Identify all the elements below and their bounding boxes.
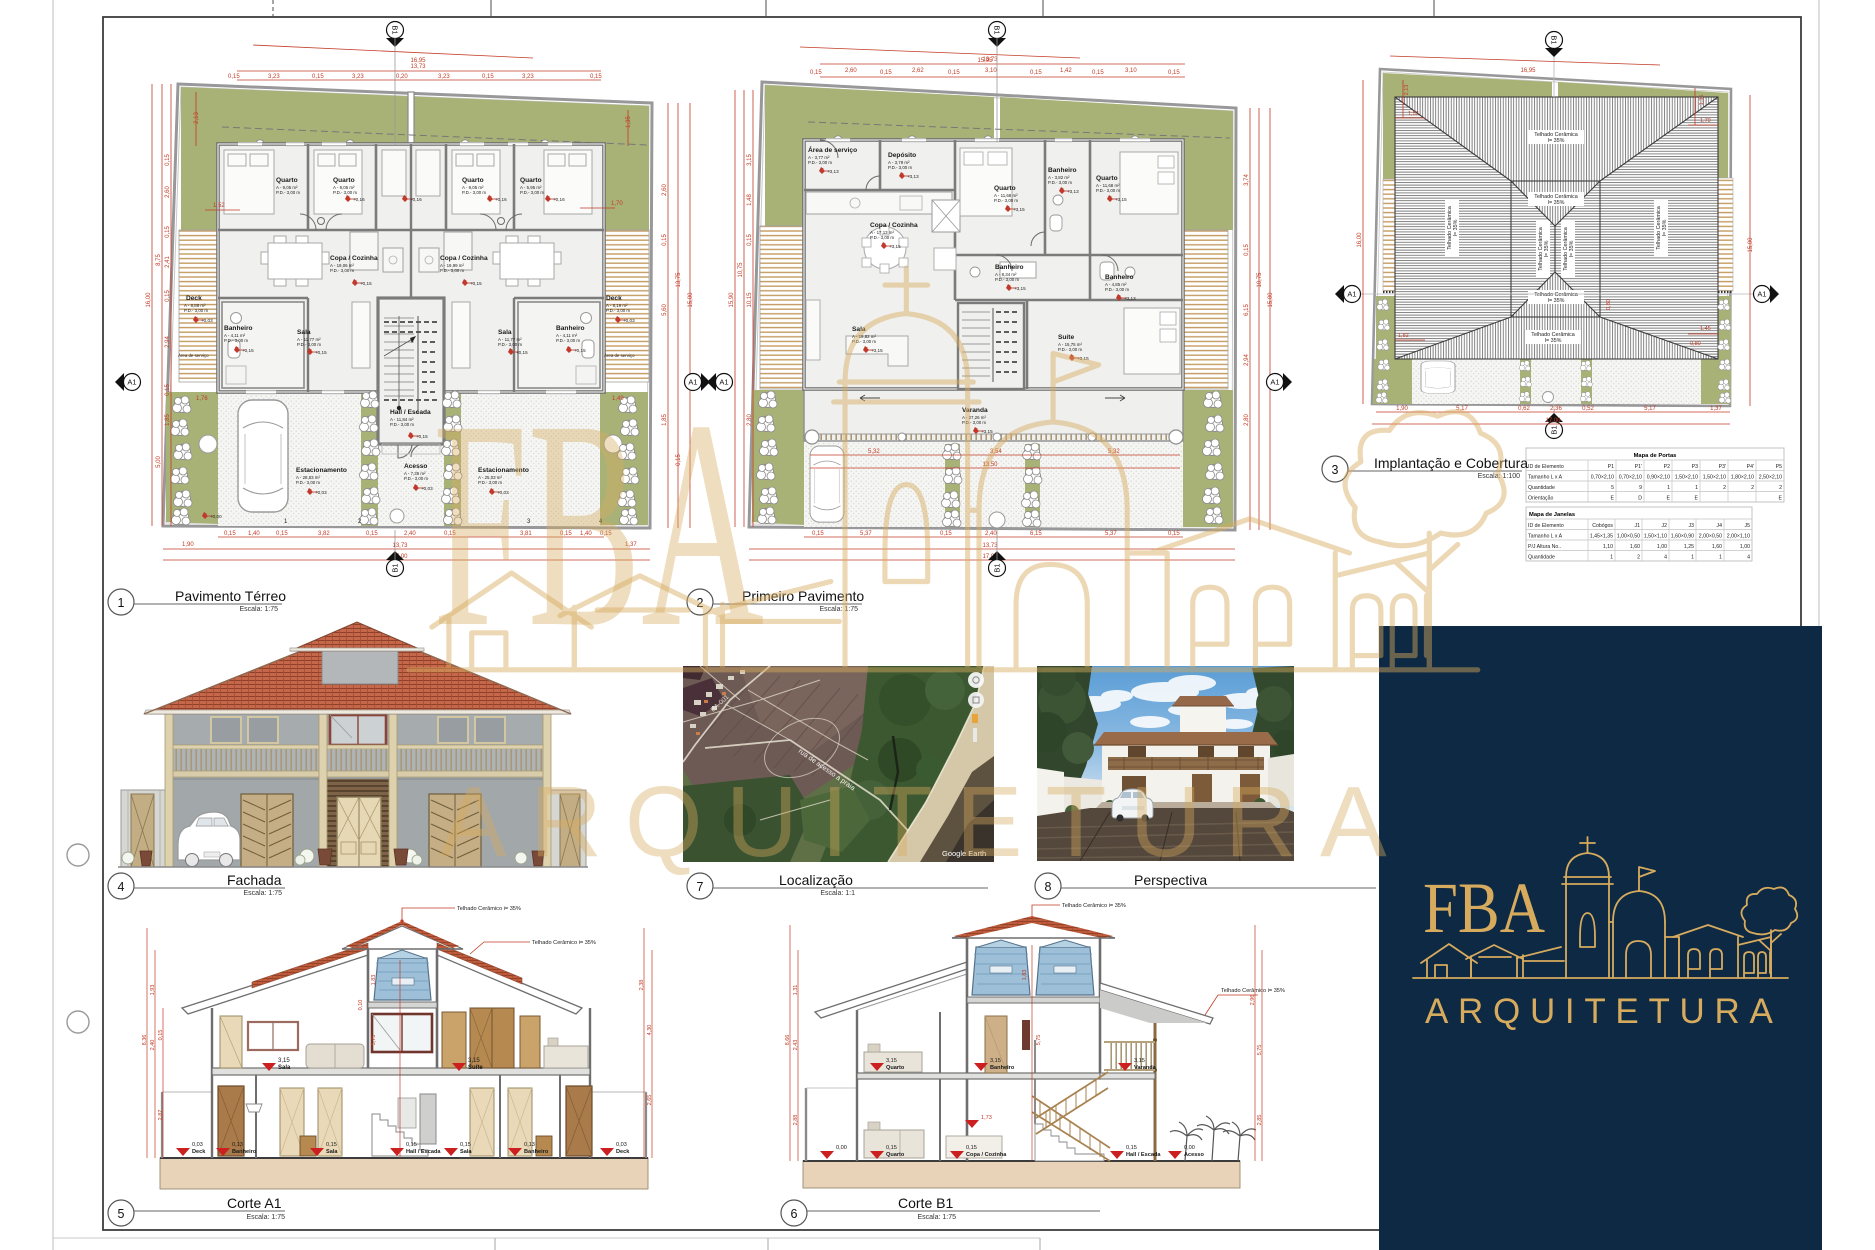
svg-text:0,15: 0,15 <box>880 70 892 76</box>
svg-text:Mapa de Janelas: Mapa de Janelas <box>1529 512 1575 518</box>
svg-text:I= 35%: I= 35% <box>1662 219 1668 236</box>
svg-text:0,15: 0,15 <box>1126 1145 1137 1151</box>
svg-text:10,75: 10,75 <box>738 262 744 278</box>
svg-text:1,45×1,35: 1,45×1,35 <box>1590 534 1613 540</box>
svg-text:0,15: 0,15 <box>165 384 171 396</box>
svg-text:J4: J4 <box>1717 523 1723 529</box>
svg-text:0,15: 0,15 <box>812 531 824 537</box>
svg-text:2,65: 2,65 <box>647 1095 653 1106</box>
svg-text:3,15: 3,15 <box>990 1058 1001 1064</box>
svg-text:I= 35%: I= 35% <box>1569 240 1575 257</box>
svg-text:Acesso: Acesso <box>1184 1152 1204 1158</box>
svg-text:Corte A1: Corte A1 <box>227 1195 282 1211</box>
svg-text:Escala: 1:75: Escala: 1:75 <box>819 606 858 613</box>
svg-text:10,15: 10,15 <box>747 292 753 308</box>
svg-text:0,20: 0,20 <box>396 74 408 80</box>
svg-text:+3,13: +3,13 <box>1124 296 1136 301</box>
svg-text:1,83: 1,83 <box>371 975 377 986</box>
svg-text:J5: J5 <box>1745 523 1751 529</box>
svg-text:Hall / Escada: Hall / Escada <box>390 409 431 416</box>
svg-text:Telhado Cerâmico i= 35%: Telhado Cerâmico i= 35% <box>457 906 521 912</box>
svg-text:Corte B1: Corte B1 <box>898 1195 953 1211</box>
svg-text:13,73: 13,73 <box>410 64 426 70</box>
svg-text:0,15: 0,15 <box>366 531 378 537</box>
svg-text:3,15: 3,15 <box>468 1058 480 1064</box>
svg-text:Quantidade: Quantidade <box>1528 555 1555 561</box>
svg-text:Escala: 1:1: Escala: 1:1 <box>820 890 855 897</box>
svg-text:0,70×2,10: 0,70×2,10 <box>1619 475 1642 481</box>
svg-text:Banheiro: Banheiro <box>524 1149 549 1155</box>
svg-text:0,03: 0,03 <box>616 1142 627 1148</box>
svg-text:ID de Elemento: ID de Elemento <box>1528 523 1564 529</box>
svg-text:Escala: 1:75: Escala: 1:75 <box>243 890 282 897</box>
svg-text:1,48: 1,48 <box>747 194 753 206</box>
svg-text:+3,15: +3,15 <box>1013 207 1025 212</box>
svg-text:3,15: 3,15 <box>1134 1058 1145 1064</box>
svg-text:P.D.- 3,00 m: P.D.- 3,00 m <box>390 422 414 427</box>
svg-text:2,62: 2,62 <box>912 68 924 74</box>
svg-text:+0,16: +0,16 <box>495 197 507 202</box>
svg-text:1,60×0,90: 1,60×0,90 <box>1671 534 1694 540</box>
svg-text:3,23: 3,23 <box>438 74 450 80</box>
svg-text:Banheiro: Banheiro <box>556 325 585 332</box>
svg-text:2,38: 2,38 <box>639 980 645 991</box>
svg-text:Estacionamento: Estacionamento <box>296 467 347 474</box>
svg-text:Copa / Cozinha: Copa / Cozinha <box>870 222 918 229</box>
svg-text:E: E <box>1779 496 1783 502</box>
svg-text:6,15: 6,15 <box>1244 304 1250 316</box>
svg-text:0,15: 0,15 <box>886 1145 897 1151</box>
svg-text:1,50×2,10: 1,50×2,10 <box>1703 475 1726 481</box>
svg-text:Banheiro: Banheiro <box>1105 274 1134 281</box>
svg-text:0,15: 0,15 <box>1168 531 1180 537</box>
svg-text:0,15: 0,15 <box>1030 70 1042 76</box>
svg-text:+0,15: +0,15 <box>516 350 528 355</box>
svg-text:Hall / Escada: Hall / Escada <box>406 1149 441 1155</box>
svg-text:Escala: 1:75: Escala: 1:75 <box>917 1214 956 1221</box>
svg-text:2: 2 <box>1637 555 1640 561</box>
svg-text:15,00: 15,00 <box>1748 237 1754 253</box>
svg-text:1,40: 1,40 <box>248 531 260 537</box>
svg-text:Deck: Deck <box>192 1149 206 1155</box>
svg-text:P.D.- 3,00 m: P.D.- 3,00 m <box>995 277 1019 282</box>
svg-text:1,80×2,10: 1,80×2,10 <box>1731 475 1754 481</box>
svg-text:3,82: 3,82 <box>318 531 330 537</box>
svg-text:0,90×2,10: 0,90×2,10 <box>1647 475 1670 481</box>
svg-text:Telhado Cerâmico i= 35%: Telhado Cerâmico i= 35% <box>1221 988 1285 994</box>
svg-text:17,00: 17,00 <box>1545 418 1561 424</box>
svg-text:P.D.- 3,00 m: P.D.- 3,00 m <box>333 190 357 195</box>
svg-text:P1: P1 <box>1608 464 1614 470</box>
svg-text:2,96: 2,96 <box>1250 995 1256 1006</box>
svg-text:Sala: Sala <box>278 1065 291 1071</box>
svg-text:3,15: 3,15 <box>886 1058 897 1064</box>
svg-text:P.D.- 3,00 m: P.D.- 3,00 m <box>1048 180 1072 185</box>
svg-text:16,95: 16,95 <box>1520 68 1536 74</box>
svg-text:0,15: 0,15 <box>276 531 288 537</box>
svg-text:1,73: 1,73 <box>981 1115 992 1121</box>
svg-text:1,90: 1,90 <box>182 542 194 548</box>
svg-text:Sala: Sala <box>326 1149 338 1155</box>
svg-text:I= 35%: I= 35% <box>1548 200 1565 206</box>
svg-text:2,94: 2,94 <box>165 336 171 348</box>
svg-text:P1': P1' <box>1635 464 1642 470</box>
svg-text:1,35: 1,35 <box>626 116 632 128</box>
svg-text:15,90: 15,90 <box>729 292 735 308</box>
svg-text:0,00: 0,00 <box>836 1145 847 1151</box>
svg-text:1: 1 <box>118 596 125 610</box>
svg-text:Depósito: Depósito <box>888 152 916 159</box>
svg-text:3,10: 3,10 <box>1125 68 1137 74</box>
svg-text:I= 35%: I= 35% <box>1548 138 1565 144</box>
svg-text:5: 5 <box>1611 485 1614 491</box>
svg-text:1,52: 1,52 <box>1408 111 1419 117</box>
svg-text:P.D.- 3,00 m: P.D.- 3,00 m <box>498 342 522 347</box>
svg-text:1,50×1,10: 1,50×1,10 <box>1644 534 1667 540</box>
svg-text:0,15: 0,15 <box>326 1142 337 1148</box>
svg-text:Sala: Sala <box>498 329 512 336</box>
svg-text:2,40: 2,40 <box>985 531 997 537</box>
svg-text:3,23: 3,23 <box>352 74 364 80</box>
svg-text:1,83: 1,83 <box>1022 970 1028 981</box>
svg-text:E: E <box>1611 496 1615 502</box>
svg-text:+3,13: +3,13 <box>907 174 919 179</box>
svg-text:1,60: 1,60 <box>1712 544 1722 550</box>
svg-text:0,15: 0,15 <box>948 70 960 76</box>
svg-text:Copa / Cozinha: Copa / Cozinha <box>440 255 488 262</box>
svg-text:+0,03: +0,03 <box>421 486 433 491</box>
svg-text:Área de serviço: Área de serviço <box>178 353 209 358</box>
svg-text:Mapa de Portas: Mapa de Portas <box>1634 453 1677 459</box>
svg-text:1,70: 1,70 <box>611 201 623 207</box>
svg-text:Quarto: Quarto <box>994 185 1016 192</box>
svg-text:4: 4 <box>1747 555 1750 561</box>
svg-text:2: 2 <box>1779 485 1782 491</box>
svg-text:2,60: 2,60 <box>845 68 857 74</box>
svg-text:1,25: 1,25 <box>1684 544 1694 550</box>
svg-text:13,73: 13,73 <box>982 57 998 63</box>
svg-text:P.D.- 3,00 m: P.D.- 3,00 m <box>606 308 630 313</box>
svg-text:0,15: 0,15 <box>406 1142 417 1148</box>
svg-text:5,75: 5,75 <box>1036 1035 1042 1046</box>
svg-text:Quarto: Quarto <box>1096 175 1118 182</box>
svg-text:+0,03: +0,03 <box>201 318 213 323</box>
svg-text:1: 1 <box>1695 485 1698 491</box>
svg-text:I= 35%: I= 35% <box>1544 240 1550 257</box>
svg-text:1,45: 1,45 <box>1700 326 1711 332</box>
svg-text:0,15: 0,15 <box>966 1145 977 1151</box>
svg-text:P.D.- 3,00 m: P.D.- 3,00 m <box>462 190 486 195</box>
svg-text:0,15: 0,15 <box>312 74 324 80</box>
svg-text:2: 2 <box>1723 485 1726 491</box>
svg-text:2,36: 2,36 <box>1550 406 1562 412</box>
svg-text:P.D.- 3,00 m: P.D.- 3,00 m <box>276 190 300 195</box>
svg-text:+3,15: +3,15 <box>1014 286 1026 291</box>
svg-text:Fachada: Fachada <box>227 872 282 888</box>
svg-text:0,15: 0,15 <box>165 226 171 238</box>
svg-text:1,60: 1,60 <box>1630 544 1640 550</box>
svg-text:1: 1 <box>1691 555 1694 561</box>
svg-text:P.D.- 3,00 m: P.D.- 3,00 m <box>1058 347 1082 352</box>
svg-text:5,60: 5,60 <box>662 304 668 316</box>
svg-text:1,52: 1,52 <box>213 203 225 209</box>
svg-text:10,75: 10,75 <box>1257 272 1263 288</box>
svg-text:+0,15: +0,15 <box>242 348 254 353</box>
svg-text:0,80: 0,80 <box>1690 341 1701 347</box>
svg-text:Tamanho L x A: Tamanho L x A <box>1528 534 1563 540</box>
svg-text:Varanda: Varanda <box>1134 1065 1157 1071</box>
svg-text:Sala: Sala <box>460 1149 472 1155</box>
svg-text:0,70×2,10: 0,70×2,10 <box>1591 475 1614 481</box>
svg-text:2,60: 2,60 <box>165 186 171 198</box>
svg-text:P.D.- 3,00 m: P.D.- 3,00 m <box>556 338 580 343</box>
svg-text:3,23: 3,23 <box>268 74 280 80</box>
svg-text:8,75: 8,75 <box>156 254 162 266</box>
svg-text:0,62: 0,62 <box>1518 406 1530 412</box>
svg-text:+3,15: +3,15 <box>889 244 901 249</box>
svg-text:1,85: 1,85 <box>165 414 171 426</box>
svg-text:4: 4 <box>118 880 125 894</box>
svg-text:2,87: 2,87 <box>158 1110 164 1121</box>
svg-text:0,15: 0,15 <box>158 1030 164 1041</box>
svg-text:P.D.- 3,00 m: P.D.- 3,00 m <box>440 268 464 273</box>
svg-text:Banheiro: Banheiro <box>990 1065 1015 1071</box>
svg-text:9: 9 <box>1639 485 1642 491</box>
svg-text:P2: P2 <box>1664 464 1670 470</box>
svg-text:P.D.- 3,00 m: P.D.- 3,00 m <box>1105 287 1129 292</box>
svg-text:+3,15: +3,15 <box>1115 197 1127 202</box>
svg-text:Copa / Cozinha: Copa / Cozinha <box>330 255 378 262</box>
svg-text:1,82: 1,82 <box>1398 333 1409 339</box>
svg-text:I= 35%: I= 35% <box>1545 338 1562 344</box>
svg-text:16,00: 16,00 <box>1357 232 1363 248</box>
svg-text:2,94: 2,94 <box>1244 354 1250 366</box>
svg-text:0,13: 0,13 <box>232 1142 243 1148</box>
svg-text:6,15: 6,15 <box>1030 531 1042 537</box>
svg-text:P.D.- 3,00 m: P.D.- 3,00 m <box>296 480 320 485</box>
svg-text:Quarto: Quarto <box>886 1152 905 1158</box>
svg-text:0,15: 0,15 <box>460 1142 471 1148</box>
svg-text:ARQUITETURA: ARQUITETURA <box>440 766 1410 878</box>
svg-text:Deck: Deck <box>186 295 202 302</box>
svg-text:+0,03: +0,03 <box>623 318 635 323</box>
svg-text:0,15: 0,15 <box>165 154 171 166</box>
svg-text:P.D.- 3,00 m: P.D.- 3,00 m <box>1096 188 1120 193</box>
svg-text:0,52: 0,52 <box>1582 406 1594 412</box>
svg-text:0,80: 0,80 <box>1606 299 1612 310</box>
svg-text:+0,16: +0,16 <box>353 197 365 202</box>
svg-text:P.D.- 3,00 m: P.D.- 3,00 m <box>888 165 912 170</box>
svg-text:Quarto: Quarto <box>520 177 542 184</box>
svg-text:3,74: 3,74 <box>1244 174 1250 186</box>
svg-text:0,15: 0,15 <box>165 290 171 302</box>
svg-text:8,36: 8,36 <box>142 1035 148 1046</box>
svg-text:J3: J3 <box>1689 523 1695 529</box>
svg-text:1,35: 1,35 <box>1699 95 1705 106</box>
svg-text:J2: J2 <box>1662 523 1668 529</box>
svg-text:5,37: 5,37 <box>1105 531 1117 537</box>
svg-text:2,40: 2,40 <box>150 1040 156 1051</box>
svg-text:Área de serviço: Área de serviço <box>604 353 635 358</box>
svg-text:E: E <box>1667 496 1671 502</box>
svg-text:1,76: 1,76 <box>196 396 208 402</box>
svg-text:FBA: FBA <box>433 359 764 689</box>
svg-text:+0,03: +0,03 <box>315 490 327 495</box>
svg-text:Quantidade: Quantidade <box>1528 485 1555 491</box>
svg-text:P.D.- 3,00 m: P.D.- 3,00 m <box>297 342 321 347</box>
svg-text:P.D.- 3,00 m: P.D.- 3,00 m <box>330 268 354 273</box>
svg-text:0,15: 0,15 <box>1092 70 1104 76</box>
svg-text:2,88: 2,88 <box>793 1115 799 1126</box>
svg-text:0,15: 0,15 <box>747 234 753 246</box>
svg-text:0,03: 0,03 <box>192 1142 203 1148</box>
svg-text:Acesso: Acesso <box>404 463 427 470</box>
svg-text:2,85: 2,85 <box>1257 1115 1263 1126</box>
svg-text:0,15: 0,15 <box>224 531 236 537</box>
svg-text:4,30: 4,30 <box>647 1025 653 1036</box>
svg-text:3,15: 3,15 <box>747 154 753 166</box>
svg-text:P3': P3' <box>1719 464 1726 470</box>
svg-text:1,37: 1,37 <box>1710 406 1722 412</box>
svg-text:Telhado Cerâmico i= 35%: Telhado Cerâmico i= 35% <box>532 940 596 946</box>
svg-text:Suíte: Suíte <box>468 1065 483 1071</box>
svg-text:2,60: 2,60 <box>662 184 668 196</box>
svg-text:Quarto: Quarto <box>276 177 298 184</box>
svg-text:P.D.- 3,00 m: P.D.- 3,00 m <box>808 160 832 165</box>
svg-text:Tamanho L x A: Tamanho L x A <box>1528 475 1563 481</box>
svg-text:Banheiro: Banheiro <box>995 264 1024 271</box>
svg-text:Quarto: Quarto <box>886 1065 905 1071</box>
svg-text:Banheiro: Banheiro <box>232 1149 257 1155</box>
svg-text:1,93: 1,93 <box>150 985 156 996</box>
svg-text:6: 6 <box>791 1207 798 1221</box>
svg-text:3,15: 3,15 <box>278 1058 290 1064</box>
svg-text:0,15: 0,15 <box>590 74 602 80</box>
svg-text:1: 1 <box>1719 555 1722 561</box>
svg-text:Suíte: Suíte <box>1058 334 1074 341</box>
svg-text:15,00: 15,00 <box>1268 292 1274 308</box>
svg-text:5,75: 5,75 <box>1257 1045 1263 1056</box>
svg-text:P.D.- 3,00 m: P.D.- 3,00 m <box>870 235 894 240</box>
svg-text:1,00: 1,00 <box>1657 544 1667 550</box>
svg-text:P3: P3 <box>1692 464 1698 470</box>
svg-text:Banheiro: Banheiro <box>1048 167 1077 174</box>
svg-text:2,13: 2,13 <box>194 112 200 124</box>
svg-text:+0,15: +0,15 <box>360 281 372 286</box>
svg-text:0,15: 0,15 <box>1244 244 1250 256</box>
svg-text:P.D.- 3,00 m: P.D.- 3,00 m <box>224 338 248 343</box>
svg-text:0,00: 0,00 <box>1184 1145 1195 1151</box>
svg-text:Copa / Cozinha: Copa / Cozinha <box>966 1152 1007 1158</box>
svg-text:Quarto: Quarto <box>462 177 484 184</box>
svg-text:Deck: Deck <box>606 295 622 302</box>
svg-text:Área de serviço: Área de serviço <box>808 145 857 154</box>
svg-text:2,00×0,50: 2,00×0,50 <box>1699 534 1722 540</box>
svg-text:5: 5 <box>118 1207 125 1221</box>
svg-text:2: 2 <box>1751 485 1754 491</box>
svg-text:0,15: 0,15 <box>940 531 952 537</box>
svg-text:2,00×1,10: 2,00×1,10 <box>1727 534 1750 540</box>
svg-text:3,10: 3,10 <box>985 68 997 74</box>
svg-text:Implantação e Cobertura: Implantação e Cobertura <box>1374 455 1528 471</box>
svg-text:Telhado Cerâmico i= 35%: Telhado Cerâmico i= 35% <box>1062 903 1126 909</box>
svg-text:Quarto: Quarto <box>333 177 355 184</box>
svg-text:5,00: 5,00 <box>156 456 162 468</box>
svg-text:8: 8 <box>1045 880 1052 894</box>
svg-text:I= 35%: I= 35% <box>1548 298 1565 304</box>
svg-text:+0,00: +0,00 <box>210 514 222 519</box>
svg-text:1,42: 1,42 <box>1060 68 1072 74</box>
svg-text:1,70: 1,70 <box>1700 118 1711 124</box>
svg-text:0,15: 0,15 <box>1168 70 1180 76</box>
svg-text:2,41: 2,41 <box>165 256 171 268</box>
svg-text:16,00: 16,00 <box>146 292 152 308</box>
svg-text:J1: J1 <box>1635 523 1641 529</box>
svg-text:1,10: 1,10 <box>1603 544 1613 550</box>
svg-text:0,10: 0,10 <box>358 1000 364 1011</box>
svg-text:5,32: 5,32 <box>868 449 880 455</box>
svg-text:7: 7 <box>697 880 704 894</box>
svg-text:2,80: 2,80 <box>1244 414 1250 426</box>
svg-text:2,43: 2,43 <box>793 1040 799 1051</box>
svg-text:+0,16: +0,16 <box>553 197 565 202</box>
svg-text:8,66: 8,66 <box>785 1035 791 1046</box>
svg-text:0,13: 0,13 <box>524 1142 535 1148</box>
svg-text:P.D.- 3,00 m: P.D.- 3,00 m <box>184 308 208 313</box>
svg-text:5,75: 5,75 <box>371 1035 377 1046</box>
svg-text:+3,13: +3,13 <box>827 169 839 174</box>
svg-text:0,15: 0,15 <box>662 234 668 246</box>
svg-text:0,15: 0,15 <box>228 74 240 80</box>
svg-text:Pavimento Térreo: Pavimento Térreo <box>175 588 286 604</box>
svg-text:13,75: 13,75 <box>676 272 682 288</box>
svg-text:P.D.- 3,00 m: P.D.- 3,00 m <box>404 476 428 481</box>
svg-text:+0,15: +0,15 <box>315 350 327 355</box>
svg-text:P5: P5 <box>1776 464 1782 470</box>
svg-text:Sala: Sala <box>297 329 311 336</box>
svg-text:1,31: 1,31 <box>793 985 799 996</box>
svg-text:Orientação: Orientação <box>1528 496 1553 502</box>
svg-text:D: D <box>1638 496 1642 502</box>
svg-text:+3,13: +3,13 <box>1067 189 1079 194</box>
svg-text:Cobógos: Cobógos <box>1592 523 1613 529</box>
svg-text:+0,15: +0,15 <box>416 434 428 439</box>
svg-text:1: 1 <box>1610 555 1613 561</box>
svg-text:1,00: 1,00 <box>1740 544 1750 550</box>
svg-text:+0,15: +0,15 <box>470 281 482 286</box>
svg-text:+0,16: +0,16 <box>410 197 422 202</box>
svg-text:Escala: 1:75: Escala: 1:75 <box>239 606 278 613</box>
svg-text:Hall / Escada: Hall / Escada <box>1126 1152 1161 1158</box>
svg-text:2,40: 2,40 <box>404 531 416 537</box>
svg-text:0,15: 0,15 <box>482 74 494 80</box>
svg-text:4: 4 <box>1664 555 1667 561</box>
svg-text:0,15: 0,15 <box>810 70 822 76</box>
svg-text:3: 3 <box>1332 463 1339 477</box>
svg-text:P4': P4' <box>1747 464 1754 470</box>
svg-text:Deck: Deck <box>616 1149 630 1155</box>
svg-text:Escala: 1:75: Escala: 1:75 <box>246 1214 285 1221</box>
svg-text:Banheiro: Banheiro <box>224 325 253 332</box>
svg-text:+3,15: +3,15 <box>871 348 883 353</box>
svg-text:I= 35%: I= 35% <box>1453 219 1459 236</box>
svg-text:1,50×2,10: 1,50×2,10 <box>1675 475 1698 481</box>
svg-text:5,17: 5,17 <box>1644 406 1656 412</box>
svg-text:2,13: 2,13 <box>1404 85 1410 96</box>
svg-text:1,90: 1,90 <box>1396 406 1408 412</box>
svg-text:P/J Altura No..: P/J Altura No.. <box>1528 544 1561 550</box>
svg-text:+0,15: +0,15 <box>574 348 586 353</box>
